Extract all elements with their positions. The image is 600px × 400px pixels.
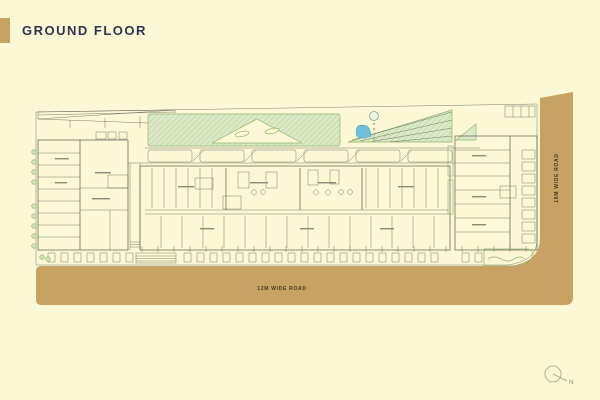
landscape-band — [148, 110, 476, 146]
tree-symbol — [370, 112, 379, 121]
page: GROUND FLOOR 12M WIDE ROAD 18M WIDE ROAD — [0, 0, 600, 400]
room-label-marks — [178, 182, 414, 229]
stair-core — [500, 186, 516, 198]
north-label: N — [569, 379, 574, 386]
corner-garden — [484, 249, 533, 266]
ground-floor-site-plan: 12M WIDE ROAD 18M WIDE ROAD — [0, 0, 600, 400]
right-road-label: 18M WIDE ROAD — [554, 153, 560, 202]
walkway-band — [128, 148, 480, 163]
parking-stall-row — [48, 253, 482, 262]
north-indicator: N — [545, 366, 574, 386]
entry-ramp — [136, 253, 176, 263]
stair-core — [108, 175, 128, 188]
bottom-road-label: 12M WIDE ROAD — [257, 286, 306, 292]
building-right-block — [455, 106, 537, 250]
gate-house — [505, 106, 535, 117]
planting-strip — [448, 146, 453, 214]
room-label-marks — [55, 158, 111, 199]
building-left-block — [38, 132, 128, 250]
lift-core — [195, 178, 213, 189]
lawn-main — [148, 114, 340, 146]
boundary-shrubs — [32, 150, 51, 262]
frontage — [48, 246, 526, 263]
site-plan — [32, 104, 537, 266]
building-central-block — [140, 166, 450, 250]
west-entrance-gap — [130, 163, 140, 250]
water-feature-pool — [356, 125, 371, 138]
north-needle — [553, 374, 567, 381]
roadside-parking-stalls — [522, 150, 535, 243]
